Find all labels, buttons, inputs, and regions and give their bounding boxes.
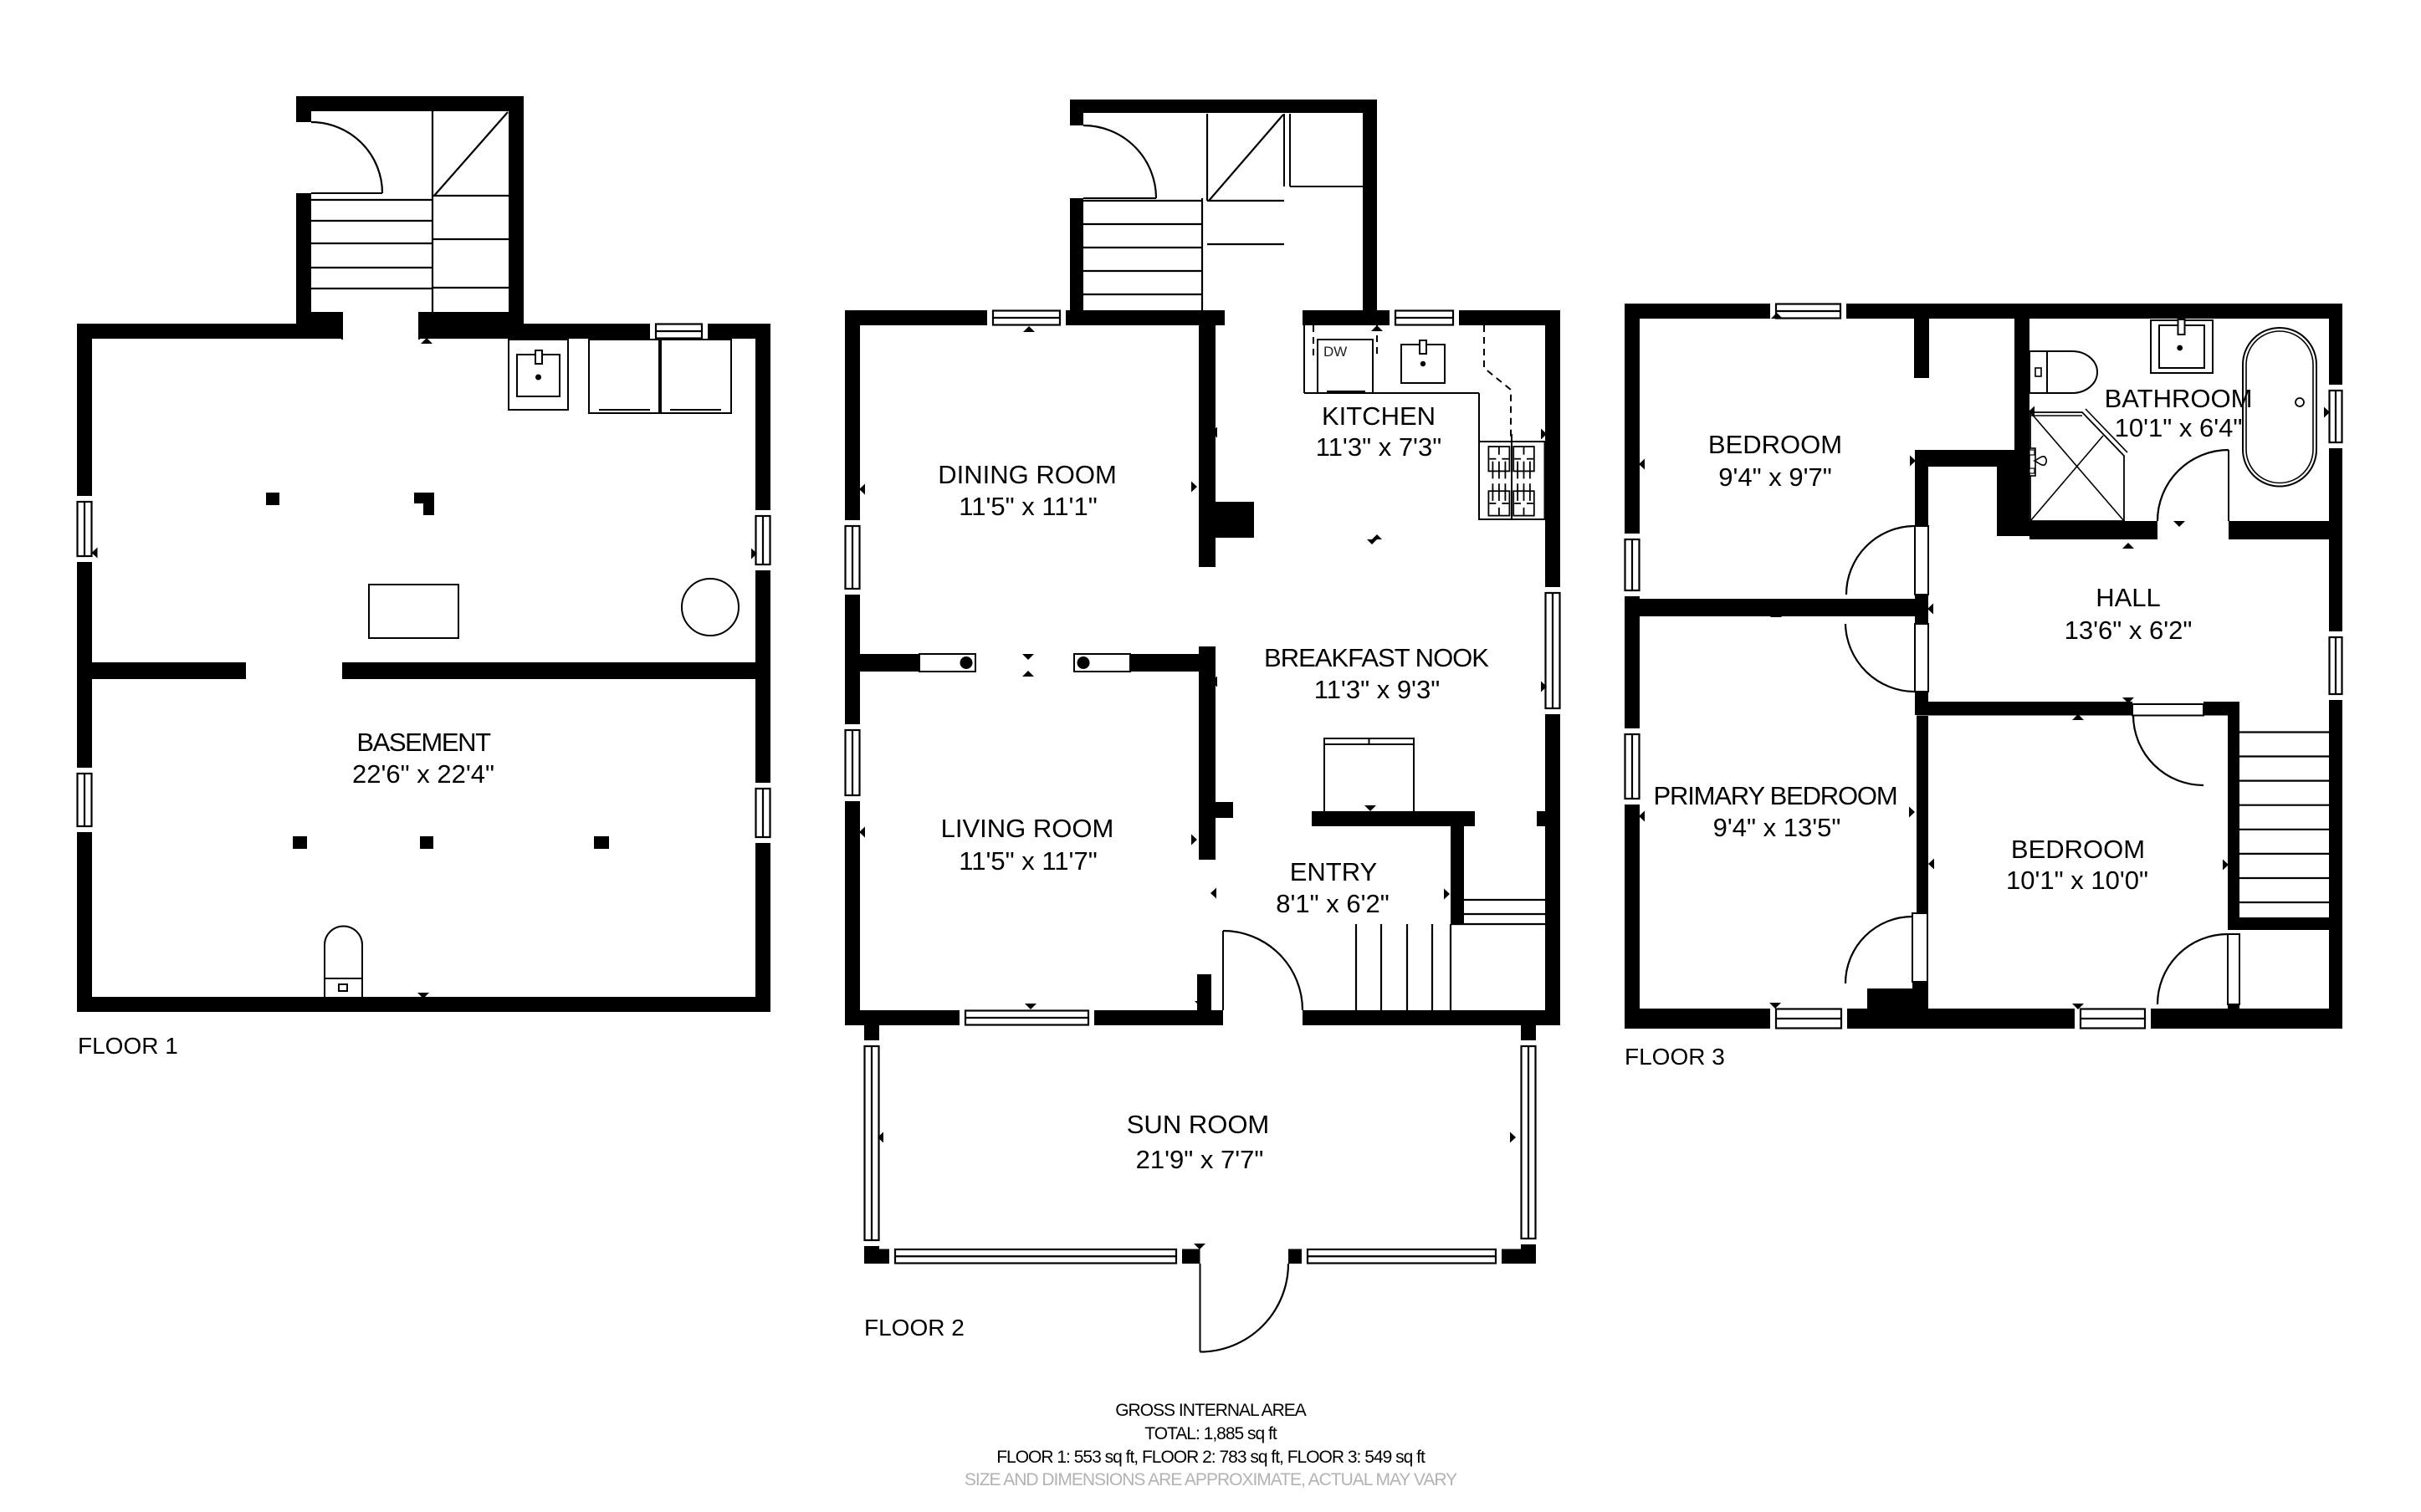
svg-text:PRIMARY BEDROOM: PRIMARY BEDROOM [1654,781,1897,810]
svg-text:11'3" x 9'3": 11'3" x 9'3" [1314,675,1440,704]
svg-text:22'6" x 22'4": 22'6" x 22'4" [352,759,494,789]
svg-text:11'3" x 7'3": 11'3" x 7'3" [1316,432,1441,462]
svg-text:BEDROOM: BEDROOM [1708,430,1842,459]
svg-text:DINING ROOM: DINING ROOM [938,460,1117,489]
svg-text:13'6" x 6'2": 13'6" x 6'2" [2065,616,2193,645]
svg-text:FLOOR 2: FLOOR 2 [864,1315,965,1341]
svg-text:GROSS INTERNAL AREA: GROSS INTERNAL AREA [1115,1401,1307,1420]
svg-text:DW: DW [1323,344,1347,360]
svg-text:SIZE AND DIMENSIONS ARE APPROX: SIZE AND DIMENSIONS ARE APPROXIMATE, ACT… [965,1470,1457,1489]
svg-text:BREAKFAST NOOK: BREAKFAST NOOK [1264,643,1489,672]
svg-text:BASEMENT: BASEMENT [356,728,491,757]
svg-text:ENTRY: ENTRY [1290,857,1378,886]
svg-text:SUN ROOM: SUN ROOM [1127,1110,1270,1139]
svg-text:FLOOR 1: FLOOR 1 [78,1033,178,1059]
svg-text:FLOOR 3: FLOOR 3 [1625,1044,1725,1070]
svg-text:9'4" x 13'5": 9'4" x 13'5" [1713,813,1841,842]
svg-text:TOTAL: 1,885 sq ft: TOTAL: 1,885 sq ft [1144,1424,1277,1443]
svg-text:LIVING ROOM: LIVING ROOM [941,814,1114,843]
svg-text:BEDROOM: BEDROOM [2011,835,2145,864]
svg-text:11'5" x 11'7": 11'5" x 11'7" [959,846,1097,876]
svg-text:10'1" x 6'4": 10'1" x 6'4" [2115,413,2243,442]
svg-text:10'1" x 10'0": 10'1" x 10'0" [2006,866,2148,895]
svg-text:11'5" x 11'1": 11'5" x 11'1" [959,492,1097,521]
svg-text:HALL: HALL [2096,583,2161,612]
svg-text:BATHROOM: BATHROOM [2105,384,2253,413]
svg-text:FLOOR 1: 553 sq ft, FLOOR 2: 7: FLOOR 1: 553 sq ft, FLOOR 2: 783 sq ft, … [996,1448,1425,1467]
svg-text:9'4" x 9'7": 9'4" x 9'7" [1718,462,1832,492]
svg-text:21'9" x 7'7": 21'9" x 7'7" [1136,1145,1264,1174]
svg-text:8'1" x 6'2": 8'1" x 6'2" [1276,889,1390,918]
svg-text:KITCHEN: KITCHEN [1322,401,1436,431]
